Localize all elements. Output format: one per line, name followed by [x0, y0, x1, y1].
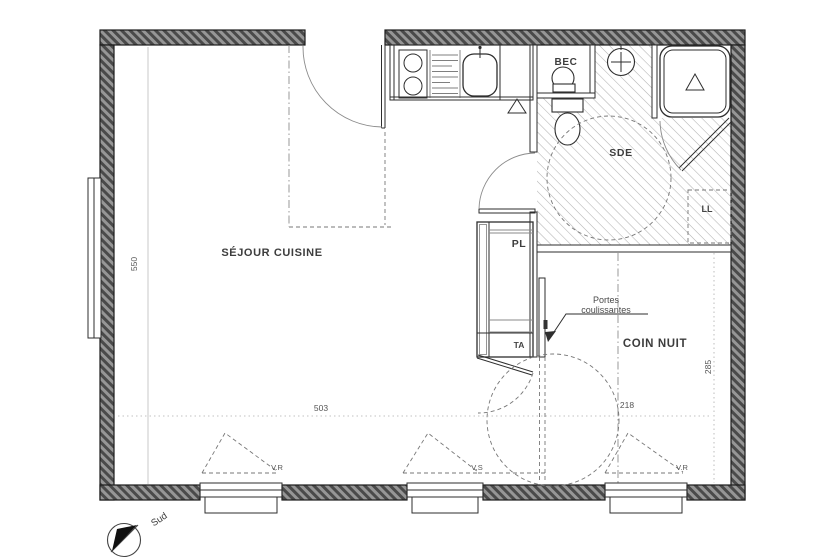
sliding-doors-label-line1: Portes — [593, 295, 620, 305]
room-label-coin-nuit: COIN NUIT — [623, 338, 687, 350]
coin-nuit-turning-circle — [487, 354, 619, 486]
entrance-door — [303, 45, 385, 225]
wall-right — [731, 45, 745, 500]
coin-nuit-guides — [487, 253, 619, 486]
wall-bottom-2 — [282, 485, 407, 500]
cooktop — [399, 50, 427, 98]
dim-285: 285 — [703, 360, 713, 374]
left-window — [88, 178, 101, 338]
kitchen-sink — [463, 46, 497, 96]
wall-bottom-3 — [483, 485, 605, 500]
entry-zone-outline — [289, 45, 392, 227]
wall-top-right — [385, 30, 745, 45]
ta-door — [477, 355, 533, 413]
room-label-bec: BEC — [555, 57, 578, 68]
window-1-label: V.R — [271, 463, 283, 472]
wall-bottom-4 — [687, 485, 745, 500]
compass-south-label: Sud — [149, 511, 169, 529]
duct-shaft — [500, 45, 530, 100]
label-ll: LL — [702, 204, 713, 214]
wall-bottom-1 — [100, 485, 200, 500]
wall-top-left — [100, 30, 305, 45]
dim-218: 218 — [620, 400, 634, 410]
drainer — [430, 50, 460, 98]
toilet — [552, 99, 583, 145]
wall-bec-right — [590, 45, 595, 97]
sliding-door — [539, 278, 548, 481]
room-label-sejour-cuisine: SÉJOUR CUISINE — [221, 246, 322, 259]
room-label-sde: SDE — [609, 147, 632, 159]
dim-550: 550 — [129, 257, 139, 271]
label-ta: TA — [514, 340, 525, 350]
vent-triangle-icon — [508, 99, 526, 113]
sliding-doors-label-line2: coulissantes — [581, 305, 631, 315]
wall-left — [100, 45, 114, 500]
shower-drain-icon — [686, 74, 704, 90]
floor-plan-page: Sud SÉJOUR CUISINE SDE COIN NUIT PL BEC … — [0, 0, 840, 560]
room-label-pl: PL — [512, 238, 527, 250]
wall-sde-coin-nuit — [537, 245, 731, 252]
compass: Sud — [108, 511, 170, 557]
dim-503: 503 — [314, 403, 328, 413]
window-3-label: V.R — [676, 463, 688, 472]
window-2 — [403, 433, 545, 513]
bec-area — [552, 67, 575, 92]
callout-arrowhead-icon — [545, 331, 556, 342]
floor-plan-drawing: Sud SÉJOUR CUISINE SDE COIN NUIT PL BEC … — [0, 0, 840, 560]
window-1 — [200, 433, 282, 513]
wall-shower-left — [652, 45, 657, 118]
shower-tray — [660, 46, 730, 117]
window-3 — [605, 433, 687, 513]
window-2-label: V.S — [471, 463, 482, 472]
wall-bec-bottom — [537, 93, 595, 98]
sde-corridor-door — [479, 153, 535, 213]
kitchen-block — [390, 45, 533, 113]
